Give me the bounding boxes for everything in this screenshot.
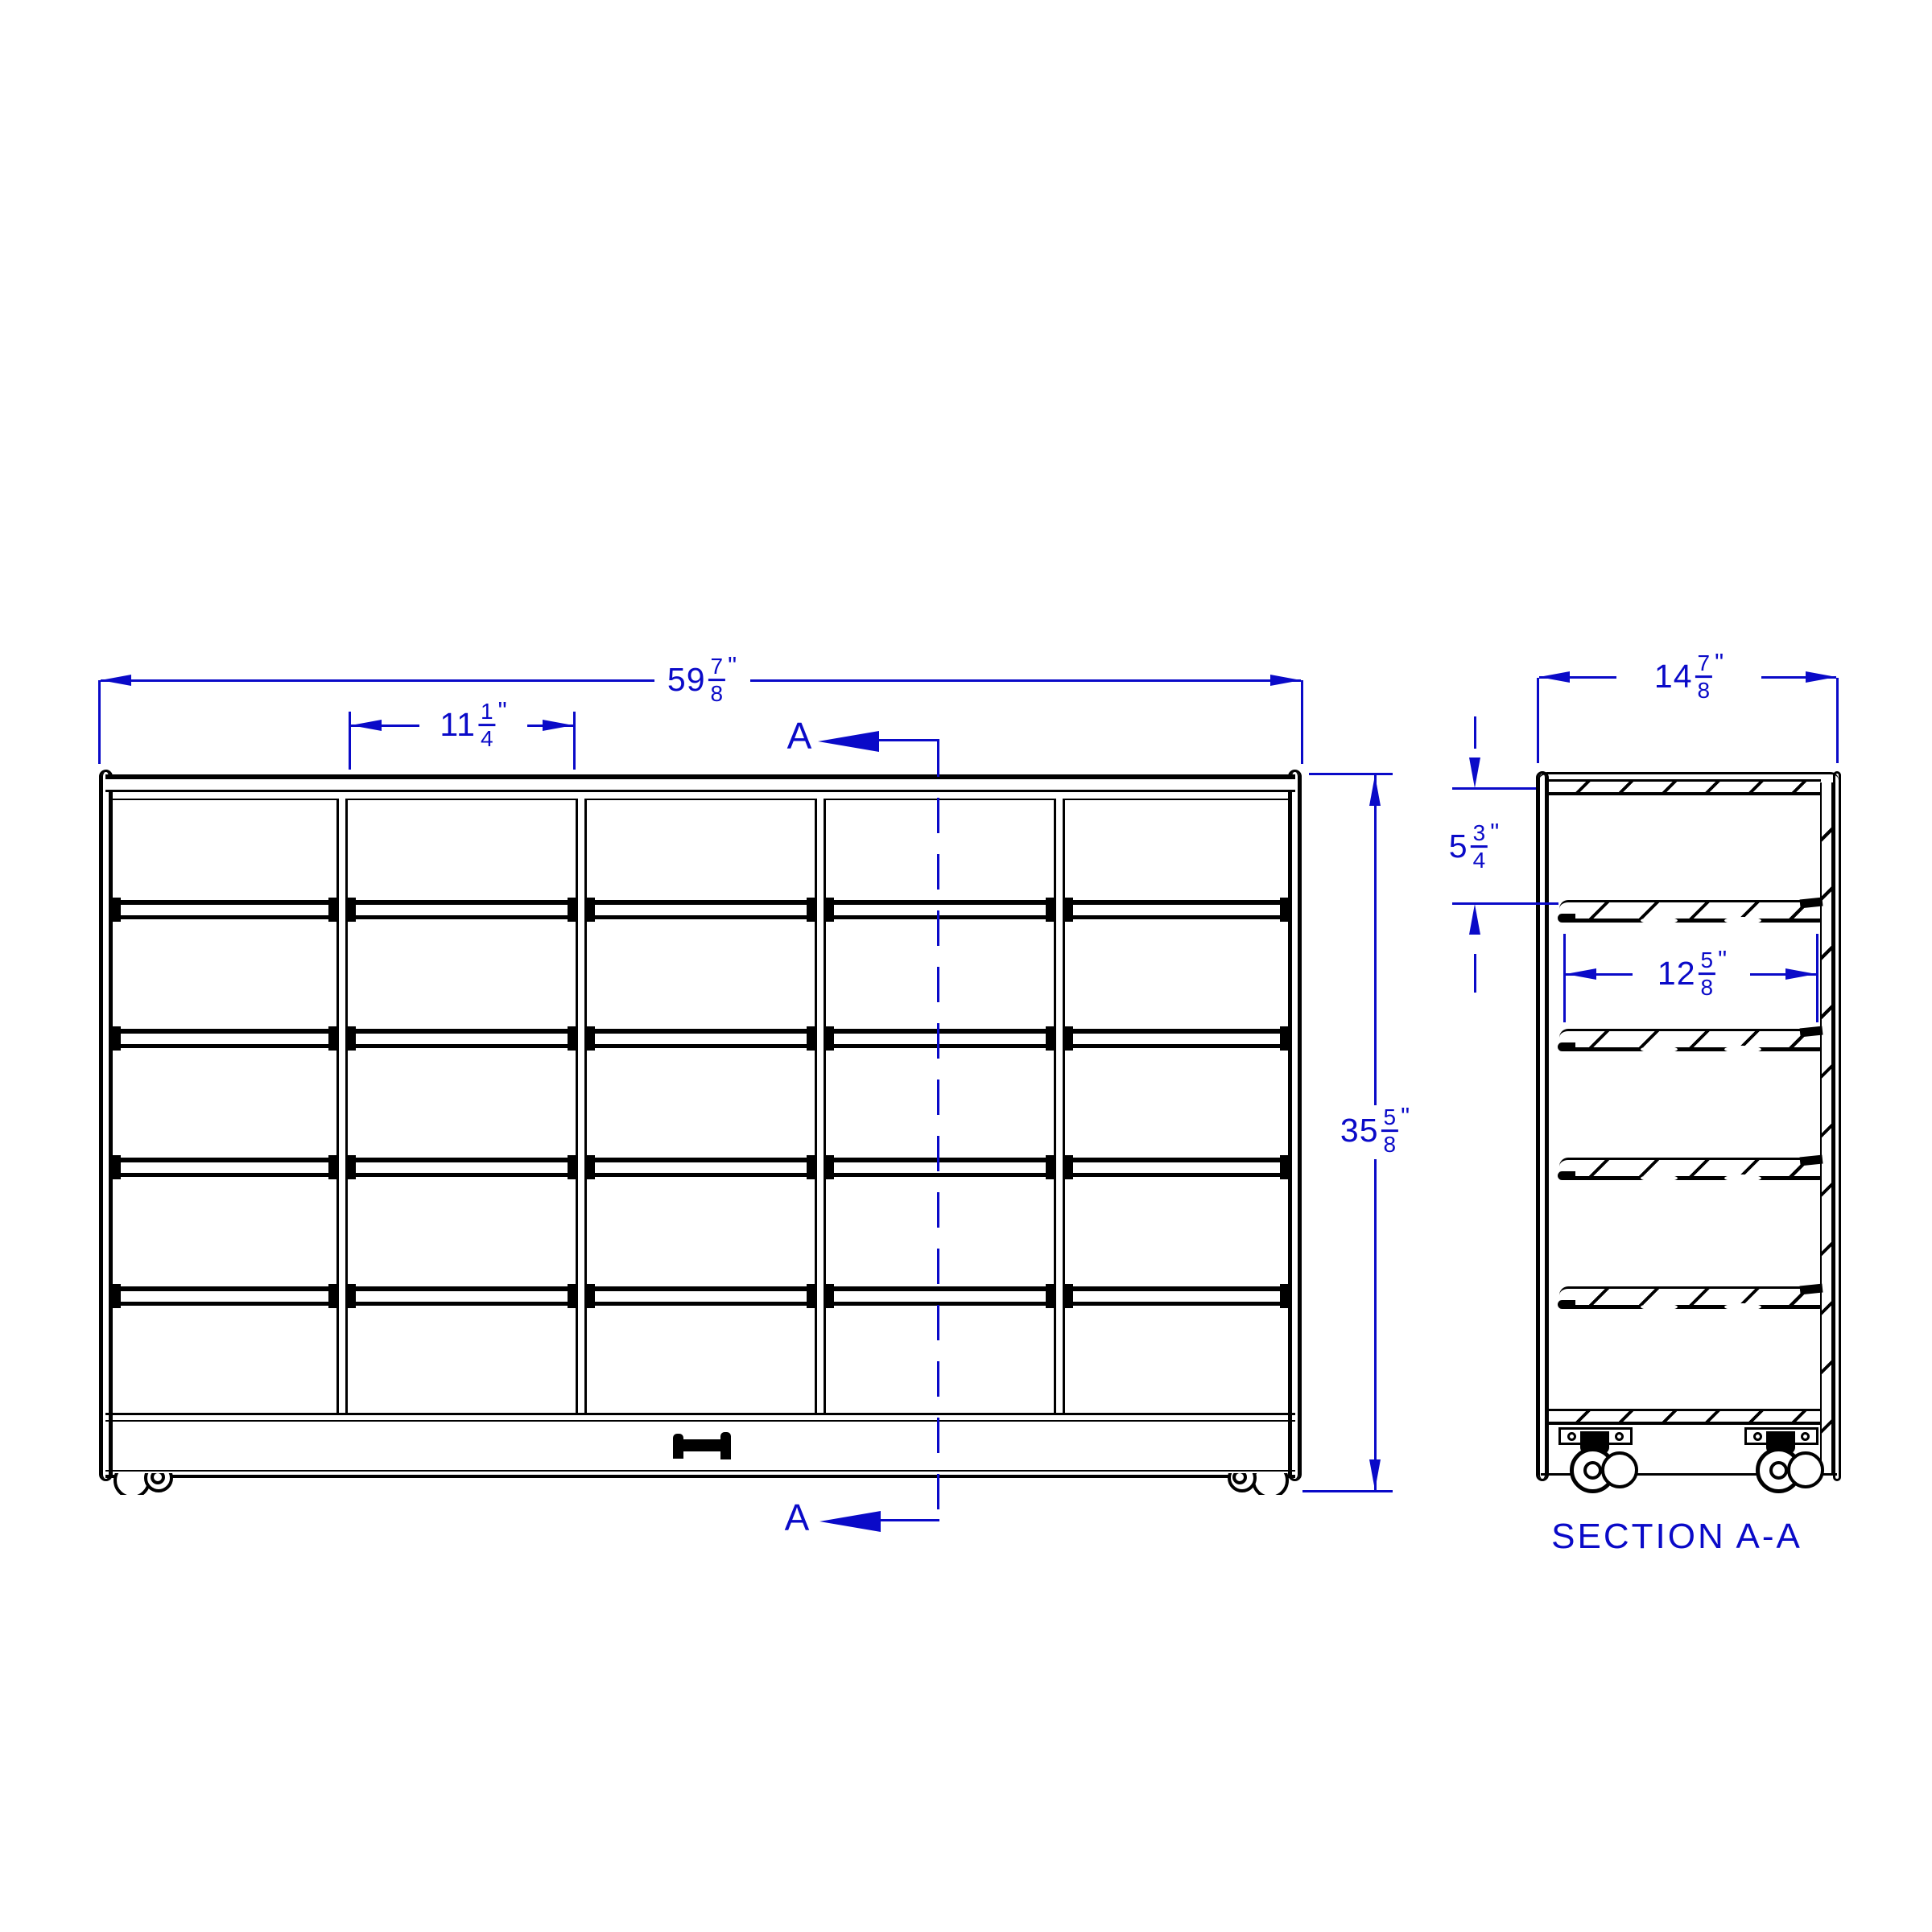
front-rail-r1-c2 bbox=[348, 900, 576, 919]
dim-overall-depth-text: 14 78 " bbox=[1654, 651, 1724, 703]
dim-overall-width-ext-right bbox=[1301, 680, 1303, 764]
dim-overall-width-line-1 bbox=[101, 679, 654, 682]
section-left-caster-wheel-2 bbox=[1601, 1451, 1638, 1488]
drawing-sheet: SECTION A-A A A 59 78 " 11 14 bbox=[0, 0, 1932, 1932]
base-ornament-left-post bbox=[673, 1434, 683, 1459]
dim-shelf-depth-arrow-right bbox=[1785, 968, 1816, 980]
dim-overall-height-text: 35 58 " bbox=[1340, 1105, 1410, 1157]
front-base-top-line bbox=[105, 1413, 1295, 1415]
dim-overall-height-arrow-bottom bbox=[1369, 1459, 1381, 1490]
front-rail-r3-c2 bbox=[348, 1158, 576, 1177]
section-front-panel bbox=[1536, 771, 1549, 1481]
front-right-side-panel bbox=[1288, 770, 1302, 1481]
front-right-caster-wheel bbox=[1252, 1473, 1289, 1495]
section-cut-dashed-line bbox=[937, 741, 939, 1521]
front-rail-r1-c4 bbox=[826, 900, 1054, 919]
front-left-caster bbox=[113, 1473, 182, 1495]
section-marker-bottom-leader bbox=[879, 1519, 939, 1521]
front-rail-r1-c5 bbox=[1065, 900, 1288, 919]
dim-overall-width-arrow-left bbox=[101, 675, 131, 686]
section-back-outer-edge bbox=[1833, 771, 1841, 1481]
front-rail-r2-c2 bbox=[348, 1029, 576, 1048]
section-shelf-2 bbox=[1559, 1029, 1821, 1051]
shelf-profile-notch bbox=[1724, 917, 1761, 924]
dim-overall-height-ext-bottom bbox=[1302, 1490, 1393, 1492]
section-marker-bottom-letter: A bbox=[785, 1496, 810, 1539]
section-right-caster-screw-1 bbox=[1753, 1432, 1762, 1441]
dim-overall-width-arrow-right bbox=[1270, 675, 1301, 686]
front-interior-top-line bbox=[113, 799, 1288, 800]
front-rail-r3-c5 bbox=[1065, 1158, 1288, 1177]
front-divider-4 bbox=[1054, 799, 1065, 1413]
dim-opening-width-arrow-right bbox=[543, 720, 573, 731]
dim-row-height-ext-bottom bbox=[1452, 902, 1558, 905]
dim-row-height-ext-top bbox=[1452, 787, 1536, 790]
section-marker-bottom-arrow bbox=[819, 1511, 881, 1532]
dim-row-height-stem-bottom bbox=[1474, 954, 1476, 993]
dim-overall-height-arrow-top bbox=[1369, 775, 1381, 806]
front-left-side-panel bbox=[99, 770, 113, 1481]
front-rail-r1-c1 bbox=[113, 900, 336, 919]
shelf-profile-notch bbox=[1641, 1174, 1678, 1182]
dim-shelf-depth-ext-right bbox=[1816, 934, 1818, 1022]
front-rail-r3-c4 bbox=[826, 1158, 1054, 1177]
front-divider-3 bbox=[815, 799, 826, 1413]
front-divider-1 bbox=[336, 799, 348, 1413]
section-right-caster-hub bbox=[1769, 1461, 1788, 1480]
front-rail-r1-c3 bbox=[587, 900, 815, 919]
shelf-profile-notch bbox=[1724, 1303, 1761, 1311]
dim-overall-width-ext-left bbox=[98, 680, 101, 764]
dim-row-height-text: 5 34 " bbox=[1449, 821, 1499, 873]
front-rail-r4-c2 bbox=[348, 1286, 576, 1306]
front-rail-r2-c1 bbox=[113, 1029, 336, 1048]
section-label: SECTION A-A bbox=[1551, 1517, 1802, 1557]
section-right-caster-wheel-2 bbox=[1787, 1451, 1824, 1488]
front-base-lower-line bbox=[105, 1470, 1295, 1472]
dim-opening-width-ext-right bbox=[573, 712, 576, 770]
shelf-profile-notch bbox=[1641, 1303, 1678, 1311]
dim-opening-width-text: 11 14 " bbox=[440, 700, 506, 751]
front-rail-r4-c3 bbox=[587, 1286, 815, 1306]
front-rail-r3-c3 bbox=[587, 1158, 815, 1177]
front-divider-2 bbox=[576, 799, 587, 1413]
shelf-profile-notch bbox=[1641, 1046, 1678, 1053]
front-top-panel bbox=[105, 774, 1295, 792]
front-base-inner-line bbox=[105, 1420, 1295, 1422]
dim-shelf-depth-arrow-left bbox=[1566, 968, 1596, 980]
dim-opening-width-arrow-left bbox=[351, 720, 382, 731]
front-rail-r3-c1 bbox=[113, 1158, 336, 1177]
dim-shelf-depth-text: 12 58 " bbox=[1657, 948, 1727, 1000]
shelf-profile-notch bbox=[1724, 1046, 1761, 1053]
front-rail-r2-c5 bbox=[1065, 1029, 1288, 1048]
section-left-caster-screw-1 bbox=[1567, 1432, 1576, 1441]
section-shelf-3 bbox=[1559, 1158, 1821, 1180]
section-left-caster-hub bbox=[1583, 1461, 1602, 1480]
shelf-profile-notch bbox=[1641, 917, 1678, 924]
section-shelf-4 bbox=[1559, 1286, 1821, 1309]
dim-overall-width-line-2 bbox=[750, 679, 1301, 682]
dim-overall-height-line-1 bbox=[1374, 775, 1377, 1105]
section-back-panel bbox=[1820, 782, 1833, 1473]
base-ornament-bar bbox=[681, 1439, 723, 1451]
dim-row-height-stem-top bbox=[1474, 716, 1476, 749]
dim-overall-depth-ext-left bbox=[1537, 678, 1539, 763]
front-rail-r4-c5 bbox=[1065, 1286, 1288, 1306]
front-rail-r4-c4 bbox=[826, 1286, 1054, 1306]
dim-overall-width-text: 59 78 " bbox=[667, 654, 737, 706]
section-right-caster-screw-2 bbox=[1801, 1432, 1810, 1441]
dim-row-height-arrow-up bbox=[1469, 904, 1480, 935]
front-rail-r4-c1 bbox=[113, 1286, 336, 1306]
section-marker-top-leader bbox=[877, 739, 939, 741]
section-marker-top-letter: A bbox=[787, 714, 812, 758]
shelf-profile-notch bbox=[1724, 1174, 1761, 1182]
front-right-caster bbox=[1220, 1473, 1290, 1495]
section-marker-top-arrow bbox=[818, 731, 879, 752]
base-ornament bbox=[673, 1432, 731, 1459]
section-bottom-panel-cut bbox=[1547, 1409, 1821, 1425]
dim-overall-depth-ext-right bbox=[1836, 678, 1839, 763]
base-ornament-right-post bbox=[720, 1432, 731, 1459]
dim-row-height-arrow-down bbox=[1469, 758, 1480, 788]
dim-overall-depth-arrow-right bbox=[1806, 671, 1836, 683]
front-rail-r2-c4 bbox=[826, 1029, 1054, 1048]
dim-overall-height-line-2 bbox=[1374, 1159, 1377, 1490]
dim-overall-depth-arrow-left bbox=[1539, 671, 1570, 683]
front-rail-r2-c3 bbox=[587, 1029, 815, 1048]
section-shelf-1 bbox=[1559, 900, 1821, 923]
section-top-panel-cut bbox=[1547, 779, 1821, 795]
section-left-caster-screw-2 bbox=[1615, 1432, 1624, 1441]
front-bottom-edge bbox=[105, 1475, 1295, 1478]
